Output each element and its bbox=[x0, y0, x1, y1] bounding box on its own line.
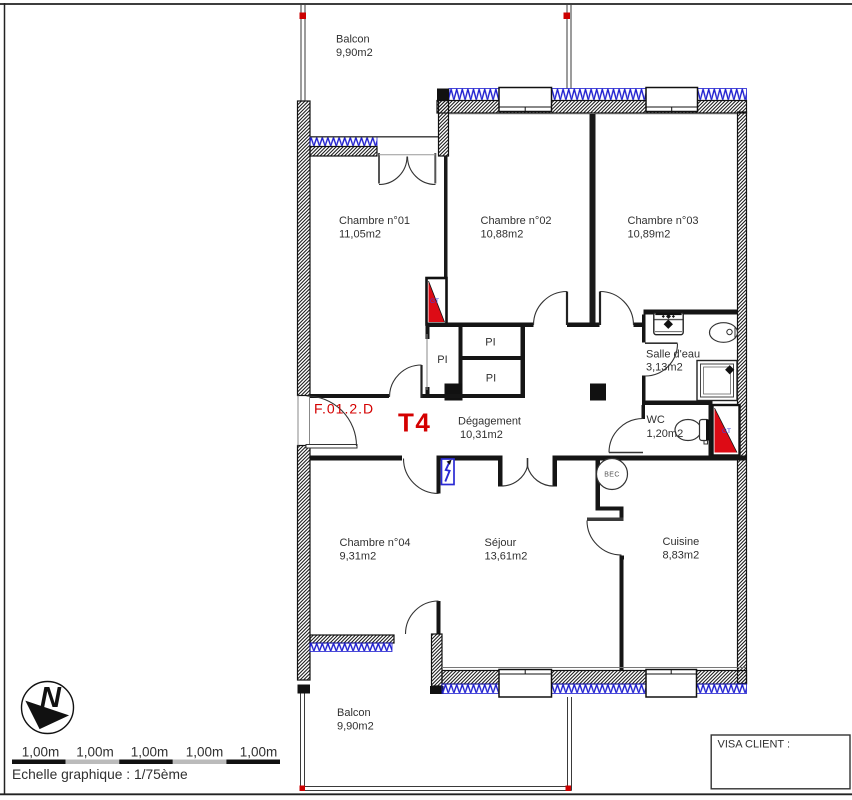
svg-text:10,31m2: 10,31m2 bbox=[460, 429, 503, 441]
svg-text:3,13m2: 3,13m2 bbox=[646, 362, 683, 374]
svg-text:PI: PI bbox=[485, 337, 495, 349]
svg-text:9,31m2: 9,31m2 bbox=[340, 551, 377, 563]
svg-text:PI: PI bbox=[486, 373, 496, 385]
svg-text:Séjour: Séjour bbox=[485, 537, 517, 549]
svg-text:VISA CLIENT :: VISA CLIENT : bbox=[718, 739, 791, 751]
svg-text:F.01.2.D: F.01.2.D bbox=[314, 401, 374, 417]
svg-text:11,05m2: 11,05m2 bbox=[339, 229, 381, 241]
svg-text:WC: WC bbox=[647, 414, 665, 426]
svg-text:1,00m: 1,00m bbox=[240, 745, 278, 760]
svg-text:10,89m2: 10,89m2 bbox=[628, 229, 671, 241]
svg-text:GT: GT bbox=[722, 428, 731, 435]
svg-text:Cuisine: Cuisine bbox=[663, 536, 700, 548]
svg-text:9,90m2: 9,90m2 bbox=[337, 721, 374, 733]
svg-text:Balcon: Balcon bbox=[337, 707, 371, 719]
svg-text:Salle d'eau: Salle d'eau bbox=[646, 349, 700, 361]
svg-text:BEC: BEC bbox=[604, 472, 620, 479]
svg-text:1,00m: 1,00m bbox=[22, 745, 60, 760]
svg-text:10,88m2: 10,88m2 bbox=[481, 229, 524, 241]
svg-text:Echelle graphique : 1/75ème: Echelle graphique : 1/75ème bbox=[12, 767, 188, 782]
svg-text:Dégagement: Dégagement bbox=[458, 416, 521, 428]
svg-text:8,83m2: 8,83m2 bbox=[663, 550, 700, 562]
svg-text:1,00m: 1,00m bbox=[131, 745, 169, 760]
svg-text:9,90m2: 9,90m2 bbox=[336, 47, 373, 59]
svg-text:1,00m: 1,00m bbox=[186, 745, 224, 760]
svg-text:PI: PI bbox=[437, 354, 447, 366]
svg-text:Chambre n°03: Chambre n°03 bbox=[628, 215, 699, 227]
svg-text:Chambre n°04: Chambre n°04 bbox=[340, 537, 411, 549]
svg-text:13,61m2: 13,61m2 bbox=[485, 551, 528, 563]
svg-text:T4: T4 bbox=[398, 408, 431, 438]
svg-text:Chambre n°01: Chambre n°01 bbox=[339, 215, 410, 227]
svg-text:Balcon: Balcon bbox=[336, 34, 370, 46]
svg-text:GT: GT bbox=[430, 298, 439, 305]
svg-text:Chambre n°02: Chambre n°02 bbox=[481, 215, 552, 227]
svg-text:1,20m2: 1,20m2 bbox=[647, 428, 684, 440]
svg-text:1,00m: 1,00m bbox=[76, 745, 114, 760]
